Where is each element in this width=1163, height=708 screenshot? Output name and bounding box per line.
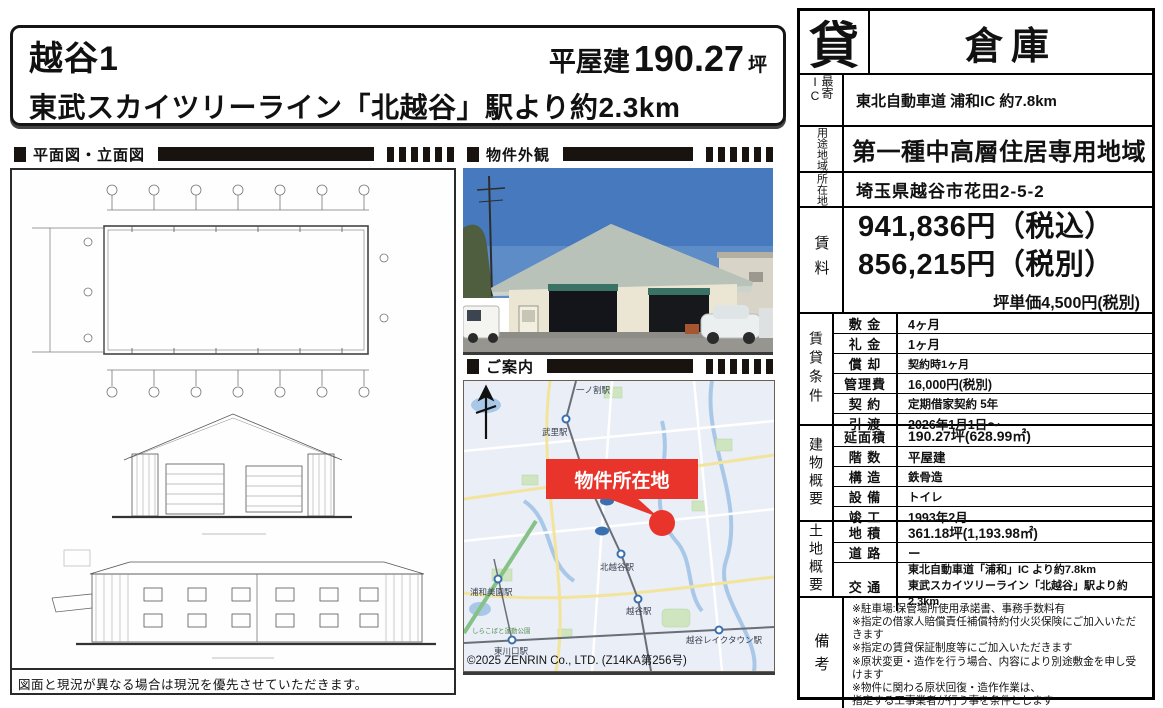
area-unit: 坪 — [748, 50, 767, 77]
row-label: 所在地 — [816, 173, 827, 206]
group-label: 建物概要 — [809, 437, 823, 509]
decor-ticks — [387, 147, 454, 162]
table-row: 礼 金1ヶ月 — [834, 334, 1152, 354]
property-title: 越谷1 — [29, 31, 119, 80]
table-row: 地 積361.18坪(1,193.98㎡) — [834, 522, 1152, 543]
rent-badge: 貸 — [800, 11, 870, 73]
remark-line: ※駐車場:保管場所使用承諾書、事務手数料有 — [852, 603, 1144, 616]
floorplan-elevation-drawing — [12, 170, 454, 666]
row-label: 道 路 — [834, 543, 898, 562]
row-label: 延面積 — [834, 426, 898, 446]
table-header-row: 貸 倉庫 — [800, 11, 1152, 75]
row-label: 設 備 — [834, 487, 898, 506]
remarks-group: 備考 ※駐車場:保管場所使用承諾書、事務手数料有 ※指定の借家人賠償責任補償特約… — [800, 598, 1152, 708]
land-summary-group: 土地概要 地 積361.18坪(1,193.98㎡) 道 路ー 交 通 東北自動… — [800, 522, 1152, 598]
zoning-value: 第一種中高層住居専用地域 — [844, 127, 1152, 171]
decor-ticks — [706, 359, 773, 374]
exterior-photo — [463, 168, 773, 352]
row-value: ー — [898, 543, 1152, 562]
square-bullet-icon — [467, 147, 479, 162]
row-value: トイレ — [898, 487, 1152, 506]
lease-terms-group: 賃貸条件 敷 金4ヶ月 礼 金1ヶ月 償 却契約時1ヶ月 管理費16,000円(… — [800, 314, 1152, 426]
photo-section-header: 物件外観 — [467, 143, 773, 165]
decor-bar — [547, 359, 693, 373]
remark-line: ※指定の借家人賠償責任補償特約付火災保険にご加入いただきます — [852, 616, 1144, 642]
building-area: 平屋建 190.27 坪 — [549, 38, 767, 80]
row-value: 190.27坪(628.99㎡) — [898, 426, 1152, 446]
row-value: 平屋建 — [898, 447, 1152, 466]
table-row: 階 数平屋建 — [834, 447, 1152, 467]
square-bullet-icon — [14, 147, 26, 162]
decor-bar — [563, 147, 693, 161]
group-label: 賃貸条件 — [809, 331, 823, 407]
row-value: 鉄骨造 — [898, 467, 1152, 486]
table-row: 契 約定期借家契約 5年 — [834, 394, 1152, 414]
address-value: 埼玉県越谷市花田2-5-2 — [844, 173, 1152, 206]
row-label: 階 数 — [834, 447, 898, 466]
station-label: 越谷レイクタウン駅 — [686, 635, 762, 645]
flyer-page: 越谷1 平屋建 190.27 坪 東武スカイツリーライン「北越谷」駅より約2.3… — [0, 0, 1163, 708]
nearest-ic-value: 東北自動車道 浦和IC 約7.8km — [844, 75, 1152, 125]
row-value: 1ヶ月 — [898, 334, 1152, 353]
row-label: 契 約 — [834, 394, 898, 413]
table-row: 道 路ー — [834, 543, 1152, 563]
row-value: 16,000円(税別) — [898, 374, 1152, 393]
rent-unit-price: 坪単価4,500円(税別) — [858, 289, 1140, 313]
group-label: 土地概要 — [809, 523, 823, 595]
row-value: 361.18坪(1,193.98㎡) — [898, 522, 1152, 542]
table-row: 最寄IC 東北自動車道 浦和IC 約7.8km — [800, 75, 1152, 127]
row-label: 構 造 — [834, 467, 898, 486]
property-category: 倉庫 — [870, 11, 1152, 73]
remark-line: ※物件に関わる原状回復・造作作業は、 — [852, 682, 1144, 695]
drawing-disclaimer: 図面と現況が異なる場合は現況を優先させていただきます。 — [12, 668, 454, 693]
station-label: 北越谷駅 — [600, 562, 635, 572]
map-copyright: ©2025 ZENRIN Co., LTD. (Z14KA第256号) — [467, 653, 687, 667]
plan-section-title: 平面図・立面図 — [33, 144, 145, 165]
area-value: 190.27 — [634, 38, 744, 80]
row-label: 最寄IC — [809, 75, 833, 125]
rent-row: 賃料 941,836円（税込） 856,215円（税別） 坪単価4,500円(税… — [800, 208, 1152, 314]
building-summary-group: 建物概要 延面積190.27坪(628.99㎡) 階 数平屋建 構 造鉄骨造 設… — [800, 426, 1152, 522]
rent-excl-tax: 856,215円（税別） — [858, 247, 1140, 285]
header-box: 越谷1 平屋建 190.27 坪 東武スカイツリーライン「北越谷」駅より約2.3… — [10, 25, 786, 126]
row-label: 敷 金 — [834, 314, 898, 333]
table-row: 償 却契約時1ヶ月 — [834, 354, 1152, 374]
station-label: 武里駅 — [542, 427, 568, 437]
row-label: 管理費 — [834, 374, 898, 393]
table-row: 所在地 埼玉県越谷市花田2-5-2 — [800, 173, 1152, 208]
transit-line-1: 東北自動車道「浦和」IC より約7.8km — [908, 563, 1096, 579]
photo-section-title: 物件外観 — [486, 144, 550, 165]
drawings-panel: 図面と現況が異なる場合は現況を優先させていただきます。 — [10, 168, 456, 695]
row-value: 定期借家契約 5年 — [898, 394, 1152, 413]
map-illustration: 一ノ割駅 武里駅 北越谷駅 越谷駅 浦和美園駅 東川口駅 越谷レイクタウン駅 し… — [464, 381, 774, 671]
access-subtitle: 東武スカイツリーライン「北越谷」駅より約2.3km — [29, 86, 767, 126]
row-label: 地 積 — [834, 522, 898, 542]
table-row: 敷 金4ヶ月 — [834, 314, 1152, 334]
station-label: 越谷駅 — [626, 606, 652, 616]
station-label: 一ノ割駅 — [576, 385, 611, 395]
row-label: 用途地域 — [816, 127, 827, 171]
callout-text: 物件所在地 — [574, 469, 669, 492]
map-section-title: ご案内 — [486, 356, 534, 377]
table-row: 設 備トイレ — [834, 487, 1152, 507]
row-value: 契約時1ヶ月 — [898, 354, 1152, 373]
table-row: 構 造鉄骨造 — [834, 467, 1152, 487]
table-row: 用途地域 第一種中高層住居専用地域 — [800, 127, 1152, 173]
square-bullet-icon — [467, 359, 479, 374]
table-row: 延面積190.27坪(628.99㎡) — [834, 426, 1152, 447]
decor-ticks — [706, 147, 773, 162]
property-location-dot — [649, 510, 675, 536]
warehouse-photo-illustration — [463, 168, 773, 352]
spec-table: 貸 倉庫 最寄IC 東北自動車道 浦和IC 約7.8km 用途地域 第一種中高層… — [797, 8, 1155, 700]
area-map: 一ノ割駅 武里駅 北越谷駅 越谷駅 浦和美園駅 東川口駅 越谷レイクタウン駅 し… — [463, 380, 775, 672]
remark-line: ※原状変更・造作を行う場合、内容により別途敷金を申し受けます — [852, 656, 1144, 682]
group-label: 備考 — [814, 633, 829, 679]
row-label: 礼 金 — [834, 334, 898, 353]
table-row: 管理費16,000円(税別) — [834, 374, 1152, 394]
remark-line: 指定する工事業者が行う事を条件とします — [852, 695, 1144, 708]
plan-section-header: 平面図・立面図 — [14, 143, 454, 165]
park-label: しらこばと運動公園 — [472, 626, 531, 635]
station-label: 浦和美園駅 — [470, 587, 513, 597]
decor-bar — [158, 147, 374, 161]
building-type: 平屋建 — [549, 40, 630, 79]
rent-incl-tax: 941,836円（税込） — [858, 209, 1140, 247]
remark-line: ※指定の賃貸保証制度等にご加入いただきます — [852, 642, 1144, 655]
map-section-header: ご案内 — [467, 355, 773, 377]
row-value: 4ヶ月 — [898, 314, 1152, 333]
row-label: 賃料 — [814, 235, 829, 285]
row-label: 償 却 — [834, 354, 898, 373]
